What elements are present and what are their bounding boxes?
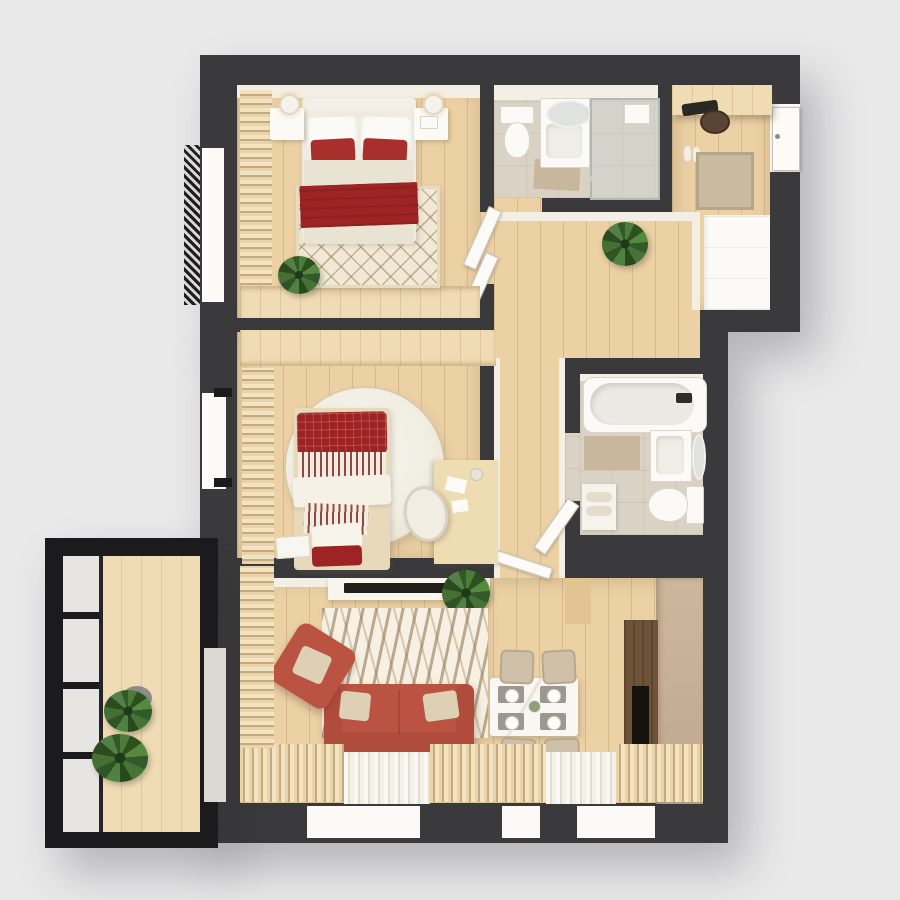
living-sheer-1 (344, 752, 430, 804)
living-window-1 (307, 806, 420, 838)
nightstand-book (420, 116, 438, 129)
bedroom1-wardrobe (240, 286, 480, 318)
apartment-floor-plan (0, 0, 900, 900)
table-centerpiece (528, 700, 541, 713)
entry-shoe-left (684, 146, 691, 161)
towel-roll-2 (586, 506, 612, 516)
hallway-floor (494, 212, 700, 358)
entrance-door (772, 107, 800, 171)
dining-chair-2 (541, 649, 577, 685)
toilet1-bowl (504, 122, 530, 158)
toilet2-tank (686, 486, 704, 524)
balcony-mullion-1 (63, 612, 101, 619)
bathtub-basin (590, 383, 694, 425)
corridor-floor (494, 358, 565, 578)
bed1-red-throw (299, 182, 418, 228)
sofa-cushion-right (422, 690, 460, 722)
dining-chair-1 (499, 649, 534, 684)
floor-book (275, 535, 310, 559)
bedroom1-curtain (240, 90, 272, 288)
plate-2 (547, 689, 561, 703)
bedroom1-plant (278, 256, 320, 294)
living-sheer-2 (546, 752, 616, 804)
bathroom2-door-gap (565, 433, 580, 501)
living-curtain-2 (430, 744, 546, 802)
desk-paper-2 (451, 499, 469, 513)
living-window-3 (577, 806, 655, 838)
toilet2-bowl (648, 488, 688, 522)
entry-cabinet (704, 215, 770, 310)
hallway-wall-face (494, 212, 700, 221)
plate-1 (505, 689, 519, 703)
media-cabinet-niche (632, 686, 649, 744)
bedroom1-window (202, 148, 224, 302)
bedroom1-balcony-railing (184, 145, 200, 305)
balcony-door-glass (204, 648, 226, 802)
sofa-cushion-left (339, 691, 372, 722)
bathtub-faucet (676, 393, 692, 403)
entry-doormat (696, 152, 754, 210)
bed2-red-pillow (312, 545, 363, 567)
hallway-wall-face-right (692, 212, 700, 310)
shower-head-plate (624, 104, 650, 124)
balcony-plant-2 (92, 734, 148, 782)
bedroom2-window-frame-bottom (214, 478, 232, 487)
lamp-right (423, 94, 444, 115)
balcony-plant-1 (104, 690, 152, 732)
kitchen-wood-counter (565, 578, 591, 624)
bedroom1-wall-face (237, 85, 480, 98)
bed2-plaid-pillow (297, 411, 388, 455)
bedroom2-wardrobe (240, 330, 496, 366)
plate-4 (547, 716, 561, 730)
balcony-inner-frame (99, 556, 103, 832)
entrance-door-handle (775, 134, 780, 139)
entry-hat (700, 110, 730, 134)
towel-roll-1 (586, 492, 612, 502)
vanity2-mirror (692, 434, 706, 480)
bathroom2-mat (584, 436, 640, 470)
lamp-left (279, 94, 300, 115)
sofa-seat-split (398, 690, 400, 734)
bathroom1-door-gap (494, 198, 542, 212)
plate-3 (505, 716, 519, 730)
balcony-mullion-2 (63, 682, 101, 689)
vanity1-sink (546, 124, 582, 158)
vanity1-mirror (546, 100, 592, 128)
living-curtain-3 (616, 744, 703, 802)
vanity2-sink (656, 436, 684, 474)
balcony-door-curtain (240, 566, 274, 748)
living-window-2 (502, 806, 540, 838)
bedroom2-window-frame-top (214, 388, 232, 397)
living-curtain-1 (240, 744, 344, 802)
hallway-plant (602, 222, 648, 266)
balcony-glazing (63, 556, 101, 832)
desk-cup (470, 468, 483, 481)
bedroom2-curtain (242, 368, 274, 564)
bedroom2-window (202, 393, 226, 489)
